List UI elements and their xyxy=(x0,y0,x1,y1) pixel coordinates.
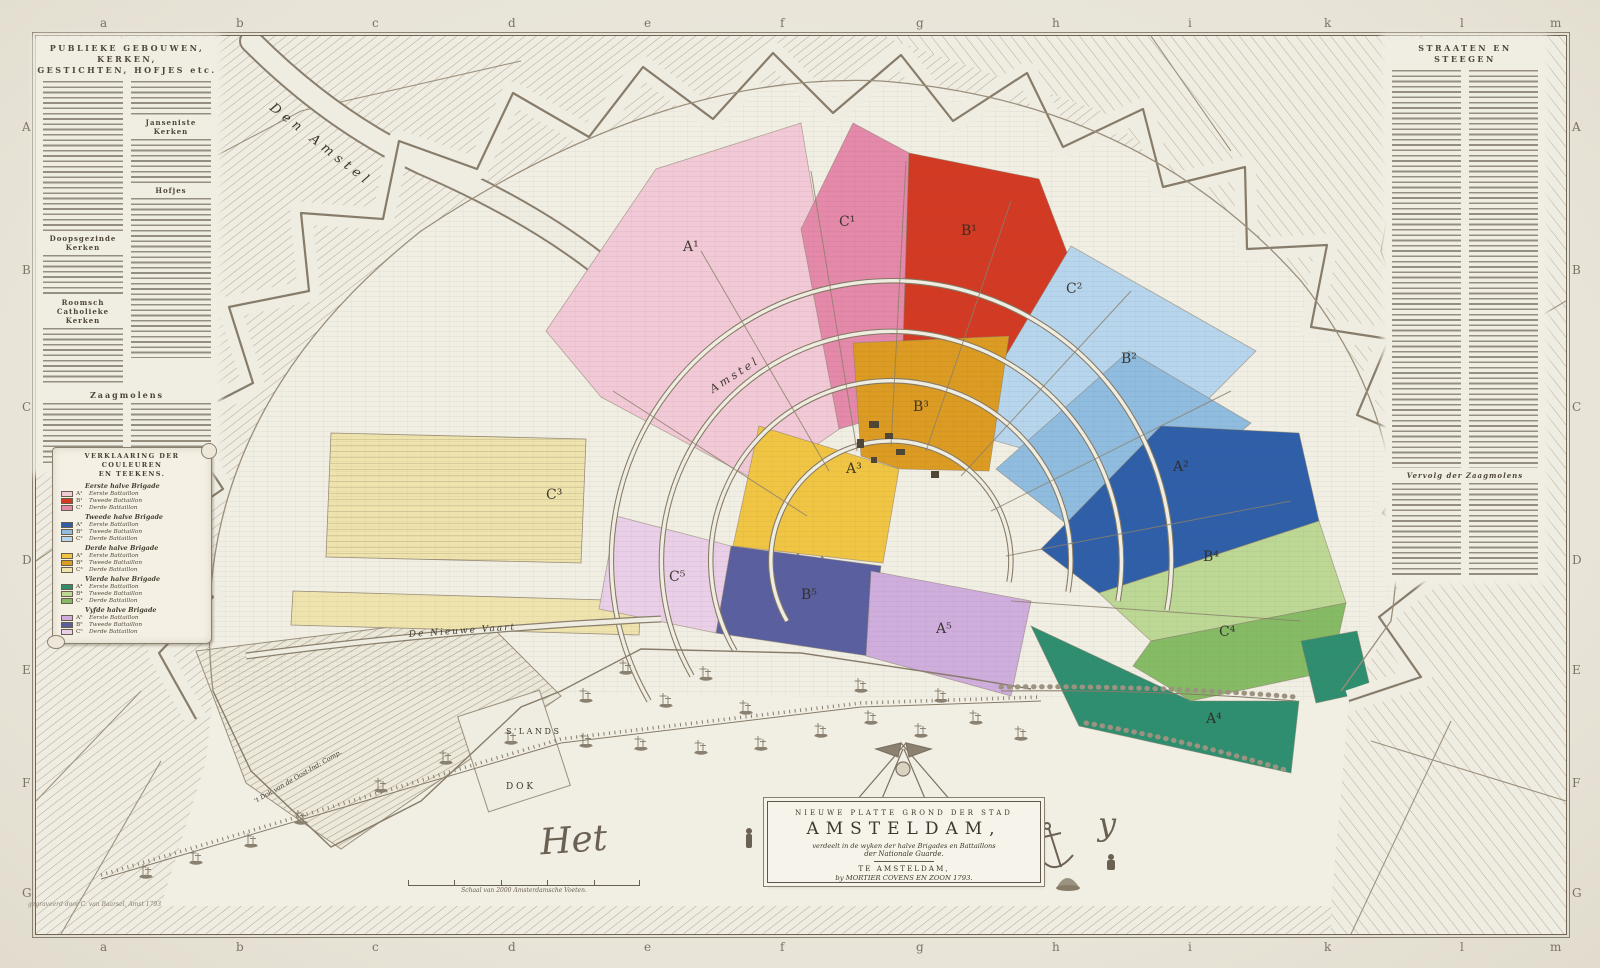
legend-brigade-2: Tweede halve Brigade A²Eerste Battaillon… xyxy=(57,513,207,542)
swatch xyxy=(61,505,73,511)
grid-letter: b xyxy=(236,940,244,954)
grid-letter: C xyxy=(22,400,31,414)
map-engraving: Den Amstel Amstel De Nieuwe Vaart S ' L … xyxy=(36,36,1566,934)
grid-letter: B xyxy=(1572,263,1581,277)
grid-letter: l xyxy=(1460,16,1464,30)
swatch xyxy=(61,598,73,604)
legend-brigade-5: Vyfde halve Brigade A⁵Eerste Battaillon … xyxy=(57,606,207,635)
map-label-A4: A⁴ xyxy=(1205,711,1222,727)
grid-letter: E xyxy=(1572,663,1581,677)
map-label-C2: C² xyxy=(1066,281,1082,297)
legend-brigade-1: Eerste halve Brigade A¹Eerste Battaillon… xyxy=(57,482,207,511)
legend-brigade-3: Derde halve Brigade A³Eerste Battaillon … xyxy=(57,544,207,573)
right-panel-title: STRAATEN EN STEEGEN xyxy=(1386,43,1544,65)
left-panel-title: PUBLIEKE GEBOUWEN, KERKEN, GESTICHTEN, H… xyxy=(37,43,217,76)
grid-letter: g xyxy=(916,940,924,954)
grid-letter: h xyxy=(1052,940,1060,954)
scale-bar: Schaal van 2000 Amsterdamsche Voeten. xyxy=(408,880,640,894)
map-label-C5: C⁵ xyxy=(669,569,686,585)
street-list-lines xyxy=(1392,483,1461,575)
grid-letter: c xyxy=(372,940,379,954)
grid-letter: B xyxy=(22,263,31,277)
index-list-lines xyxy=(43,328,123,386)
swatch xyxy=(61,622,73,628)
scale-line xyxy=(408,880,640,886)
grid-letter: f xyxy=(780,940,784,954)
grid-letter: D xyxy=(1572,553,1582,567)
street-list-lines xyxy=(1469,70,1538,468)
legend-title: VERKLAARING DER COULEUREN EN TEEKENS. xyxy=(57,452,207,479)
grid-letter: k xyxy=(1324,16,1331,30)
swatch xyxy=(61,591,73,597)
swatch xyxy=(61,498,73,504)
grid-letter: e xyxy=(644,940,651,954)
grid-letter: F xyxy=(22,776,30,790)
label-het-ij-1: Het xyxy=(539,818,609,864)
map-sheet: Den Amstel Amstel De Nieuwe Vaart S ' L … xyxy=(0,0,1600,968)
grid-letter: a xyxy=(100,940,107,954)
grid-letter: D xyxy=(22,553,32,567)
grid-letter: G xyxy=(22,886,32,900)
map-label-B4: B⁴ xyxy=(1203,549,1219,565)
index-list-lines xyxy=(43,81,123,231)
map-label-C1: C¹ xyxy=(839,214,855,230)
grid-letter: b xyxy=(236,16,244,30)
street-list-lines xyxy=(1392,70,1461,468)
grid-letter: G xyxy=(1572,886,1582,900)
grid-letter: f xyxy=(780,16,784,30)
grid-letter: l xyxy=(1460,940,1464,954)
grid-letter: m xyxy=(1550,16,1561,30)
map-label-C4: C⁴ xyxy=(1219,624,1236,640)
map-frame: Den Amstel Amstel De Nieuwe Vaart S ' L … xyxy=(35,35,1567,935)
cartouche-subtitle: verdeelt in de wyken der halve Brigades … xyxy=(768,842,1040,850)
map-label-A5: A⁵ xyxy=(935,621,952,637)
map-label-C3: C³ xyxy=(546,487,562,503)
left-index-panel: PUBLIEKE GEBOUWEN, KERKEN, GESTICHTEN, H… xyxy=(37,39,217,471)
cartouche-kicker: NIEUWE PLATTE GROND DER STAD xyxy=(768,809,1040,817)
map-label-B1: B¹ xyxy=(961,223,977,239)
title-cartouche: NIEUWE PLATTE GROND DER STAD AMSTELDAM, … xyxy=(767,801,1041,883)
grid-letter: A xyxy=(22,120,31,134)
map-title: AMSTELDAM, xyxy=(768,819,1040,839)
grid-letter: a xyxy=(100,16,107,30)
cartouche-subtitle2: der Nationale Guarde. xyxy=(768,850,1040,858)
index-list-lines xyxy=(43,255,123,295)
grid-letter: m xyxy=(1550,940,1561,954)
cartouche-imprint-publisher: by MORTIER COVENS EN ZOON 1793. xyxy=(768,874,1040,882)
swatch xyxy=(61,522,73,528)
index-list-lines xyxy=(131,139,211,183)
map-label-B3: B³ xyxy=(913,399,929,415)
map-label-A3: A³ xyxy=(845,461,862,477)
label-slands: S ' L A N D S xyxy=(506,727,559,736)
grid-letter: F xyxy=(1572,776,1580,790)
street-list-lines xyxy=(1469,483,1538,575)
cartouche-imprint-place: TE AMSTELDAM, xyxy=(768,864,1040,873)
legend-brigade-4: Vierde halve Brigade A⁴Eerste Battaillon… xyxy=(57,575,207,604)
grid-letter: h xyxy=(1052,16,1060,30)
engraver-credit: gegraveerd door C. van Baarsel, Amst 179… xyxy=(28,901,161,908)
index-list-lines xyxy=(131,198,211,358)
map-label-A2: A² xyxy=(1172,459,1189,475)
swatch xyxy=(61,529,73,535)
colour-legend-scroll: VERKLAARING DER COULEUREN EN TEEKENS. Ee… xyxy=(52,447,212,644)
subhead-vervolg: Vervolg der Zaagmolens xyxy=(1386,471,1544,480)
label-dok: D O K xyxy=(506,782,533,792)
grid-letter: i xyxy=(1188,940,1192,954)
swatch xyxy=(61,560,73,566)
swatch xyxy=(61,567,73,573)
right-index-panel: STRAATEN EN STEEGEN Vervolg der Zaagmole… xyxy=(1386,39,1544,581)
grid-letter: A xyxy=(1572,120,1581,134)
label-het-ij-2: y xyxy=(1098,805,1116,843)
swatch xyxy=(61,491,73,497)
grid-letter: d xyxy=(508,940,516,954)
subhead-janseniste: Janseniste Kerken xyxy=(131,118,211,136)
subhead-zaagmolens: Zaagmolens xyxy=(37,390,217,400)
grid-letter: c xyxy=(372,16,379,30)
grid-letter: d xyxy=(508,16,516,30)
swatch xyxy=(61,584,73,590)
grid-letter: e xyxy=(644,16,651,30)
swatch xyxy=(61,615,73,621)
cartouche-rule xyxy=(874,861,934,862)
map-label-B5: B⁵ xyxy=(801,587,817,603)
scale-caption: Schaal van 2000 Amsterdamsche Voeten. xyxy=(408,887,640,894)
grid-letter: C xyxy=(1572,400,1581,414)
map-label-B2: B² xyxy=(1121,351,1137,367)
subhead-roomsch: Roomsch Catholieke Kerken xyxy=(43,298,123,325)
subhead-hofjes: Hofjes xyxy=(131,186,211,195)
index-list-lines xyxy=(131,81,211,115)
grid-letter: i xyxy=(1188,16,1192,30)
swatch xyxy=(61,553,73,559)
grid-letter: E xyxy=(22,663,31,677)
swatch xyxy=(61,629,73,635)
subhead-doopsgezinde: Doopsgezinde Kerken xyxy=(43,234,123,252)
grid-letter: k xyxy=(1324,940,1331,954)
swatch xyxy=(61,536,73,542)
grid-letter: g xyxy=(916,16,924,30)
map-label-A1: A¹ xyxy=(682,239,699,255)
